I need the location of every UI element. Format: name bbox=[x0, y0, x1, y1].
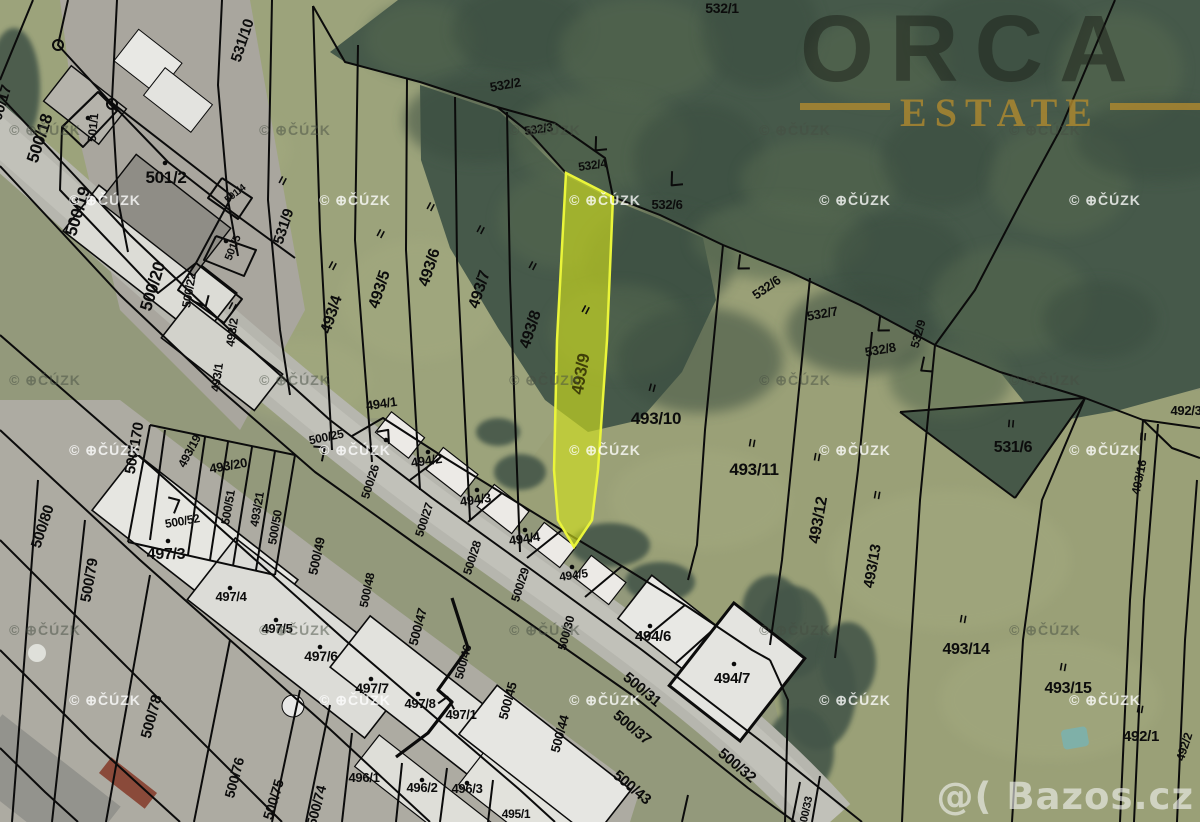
parcel-label: 495/1 bbox=[502, 807, 531, 821]
cuzk-watermark: © ⊕ČÚZK bbox=[819, 441, 891, 458]
parcel-reference-dot bbox=[224, 239, 229, 244]
parcel-label: 493/11 bbox=[729, 460, 778, 479]
cuzk-watermark-faint: © ⊕ČÚZK bbox=[759, 621, 831, 638]
cuzk-watermark-faint: © ⊕ČÚZK bbox=[1009, 121, 1081, 138]
cuzk-watermark: © ⊕ČÚZK bbox=[1069, 691, 1141, 708]
parcel-label: 501/2 bbox=[145, 168, 186, 187]
map-canvas: ================= 500/17500/18500/19501/… bbox=[0, 0, 1200, 822]
cuzk-watermark-faint: © ⊕ČÚZK bbox=[759, 121, 831, 138]
parcel-label: 492/1 bbox=[1123, 728, 1159, 745]
cuzk-watermark-faint: © ⊕ČÚZK bbox=[9, 371, 81, 388]
parcel-label: 497/3 bbox=[147, 546, 186, 563]
cuzk-watermark: © ⊕ČÚZK bbox=[1069, 441, 1141, 458]
cuzk-watermark-faint: © ⊕ČÚZK bbox=[9, 621, 81, 638]
cuzk-watermark-faint: © ⊕ČÚZK bbox=[509, 371, 581, 388]
parcel-label: 532/6 bbox=[651, 197, 682, 212]
parcel-reference-dot bbox=[166, 539, 171, 544]
parcel-label: 496/3 bbox=[451, 781, 482, 796]
cuzk-watermark-faint: © ⊕ČÚZK bbox=[9, 121, 81, 138]
cuzk-watermark: © ⊕ČÚZK bbox=[319, 441, 391, 458]
cuzk-watermark-faint: © ⊕ČÚZK bbox=[1009, 621, 1081, 638]
parcel-label: 492/3 bbox=[1170, 403, 1200, 418]
cuzk-watermark-faint: © ⊕ČÚZK bbox=[1009, 371, 1081, 388]
parcel-label: 494/7 bbox=[714, 670, 750, 687]
cuzk-watermark: © ⊕ČÚZK bbox=[569, 691, 641, 708]
cuzk-watermark: © ⊕ČÚZK bbox=[569, 441, 641, 458]
cuzk-watermark: © ⊕ČÚZK bbox=[819, 691, 891, 708]
cuzk-watermark: © ⊕ČÚZK bbox=[819, 191, 891, 208]
parcel-label: 494/6 bbox=[635, 628, 671, 645]
cuzk-watermark-faint: © ⊕ČÚZK bbox=[509, 621, 581, 638]
cuzk-watermark: © ⊕ČÚZK bbox=[69, 691, 141, 708]
parcel-label: 496/1 bbox=[348, 770, 379, 785]
parcel-label: 501/1 bbox=[85, 112, 101, 142]
parcel-label: 497/6 bbox=[304, 648, 338, 664]
parcel-reference-dot bbox=[732, 662, 737, 667]
parcel-label: 493/14 bbox=[942, 641, 990, 658]
cuzk-watermark: © ⊕ČÚZK bbox=[569, 191, 641, 208]
parcel-label: 497/8 bbox=[404, 696, 435, 711]
cuzk-watermark-faint: © ⊕ČÚZK bbox=[759, 371, 831, 388]
cadastral-map-image: ================= 500/17500/18500/19501/… bbox=[0, 0, 1200, 822]
cuzk-watermark-faint: © ⊕ČÚZK bbox=[259, 121, 331, 138]
parcel-label: 496/2 bbox=[406, 780, 437, 795]
land-use-tick-mark: = bbox=[1003, 418, 1021, 428]
parcel-label: 497/4 bbox=[215, 589, 247, 604]
land-use-tick-mark: = bbox=[1135, 431, 1153, 441]
parcel-label: 497/1 bbox=[445, 707, 476, 722]
cuzk-watermark-faint: © ⊕ČÚZK bbox=[509, 121, 581, 138]
parcel-reference-dot bbox=[163, 161, 168, 166]
cuzk-watermark-faint: © ⊕ČÚZK bbox=[259, 371, 331, 388]
cuzk-watermark: © ⊕ČÚZK bbox=[69, 441, 141, 458]
cuzk-watermark: © ⊕ČÚZK bbox=[319, 191, 391, 208]
cuzk-watermark: © ⊕ČÚZK bbox=[1069, 191, 1141, 208]
cuzk-watermark-faint: © ⊕ČÚZK bbox=[259, 621, 331, 638]
parcel-label: 493/10 bbox=[631, 409, 681, 428]
parcel-label: 531/6 bbox=[994, 439, 1033, 456]
parcel-label: 532/1 bbox=[705, 0, 739, 16]
cuzk-watermark: © ⊕ČÚZK bbox=[69, 191, 141, 208]
cuzk-watermark: © ⊕ČÚZK bbox=[319, 691, 391, 708]
